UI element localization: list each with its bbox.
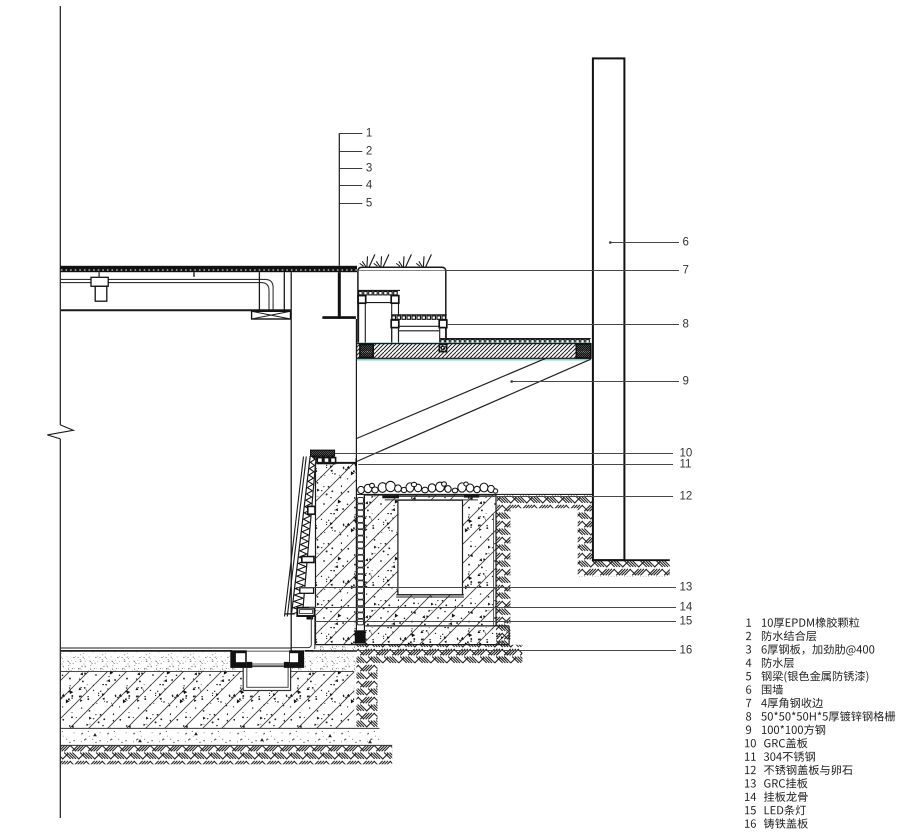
svg-text:6: 6 <box>683 237 689 249</box>
svg-text:13: 13 <box>680 582 693 594</box>
svg-text:1: 1 <box>366 128 372 140</box>
svg-text:3: 3 <box>366 163 372 175</box>
svg-text:9: 9 <box>683 376 689 388</box>
svg-text:16: 16 <box>680 645 693 657</box>
svg-text:11: 11 <box>680 459 692 471</box>
svg-text:5: 5 <box>366 198 372 210</box>
svg-text:15: 15 <box>680 616 693 628</box>
svg-text:2: 2 <box>366 146 372 158</box>
svg-text:12: 12 <box>680 491 693 503</box>
svg-text:4: 4 <box>366 180 373 192</box>
svg-text:14: 14 <box>680 602 693 614</box>
svg-text:7: 7 <box>683 265 689 277</box>
svg-text:8: 8 <box>683 319 689 331</box>
